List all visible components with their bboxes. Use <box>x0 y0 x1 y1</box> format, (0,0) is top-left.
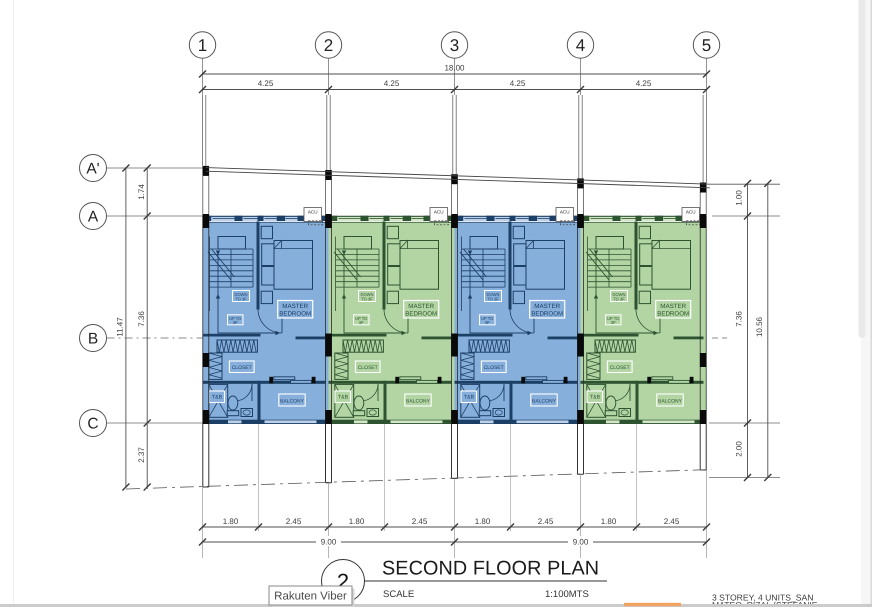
svg-text:B: B <box>88 331 98 348</box>
svg-text:MASTER: MASTER <box>534 303 560 310</box>
svg-text:3F: 3F <box>233 320 238 325</box>
svg-text:2.37: 2.37 <box>137 447 146 463</box>
svg-text:1.00: 1.00 <box>735 190 744 206</box>
svg-text:2.45: 2.45 <box>538 517 554 526</box>
svg-text:C: C <box>87 416 98 433</box>
svg-text:1.80: 1.80 <box>223 517 239 526</box>
svg-text:BALCONY: BALCONY <box>280 398 305 404</box>
svg-text:1.80: 1.80 <box>475 517 491 526</box>
svg-text:CLOSET: CLOSET <box>610 365 630 371</box>
svg-text:A': A' <box>86 161 99 178</box>
svg-text:4.25: 4.25 <box>258 79 274 88</box>
svg-text:SCALE: SCALE <box>383 589 414 600</box>
svg-text:2.45: 2.45 <box>412 517 428 526</box>
svg-text:1:100MTS: 1:100MTS <box>545 589 589 600</box>
svg-text:5: 5 <box>702 36 711 55</box>
svg-text:18.00: 18.00 <box>444 64 465 73</box>
svg-text:MASTER: MASTER <box>282 303 308 310</box>
svg-text:TO 3F: TO 3F <box>613 297 625 302</box>
svg-text:1: 1 <box>198 36 207 55</box>
svg-text:MASTER: MASTER <box>660 303 686 310</box>
svg-text:BEDROOM: BEDROOM <box>657 311 689 318</box>
svg-text:T&B: T&B <box>338 395 349 401</box>
svg-text:9.00: 9.00 <box>321 538 337 547</box>
svg-text:BALCONY: BALCONY <box>532 398 557 404</box>
svg-text:CLOSET: CLOSET <box>358 365 378 371</box>
svg-text:2: 2 <box>324 36 333 55</box>
svg-text:9.00: 9.00 <box>573 538 589 547</box>
svg-text:ACU: ACU <box>686 210 696 215</box>
svg-text:10.56: 10.56 <box>755 316 764 337</box>
svg-text:CLOSET: CLOSET <box>232 365 252 371</box>
svg-text:7.36: 7.36 <box>137 311 146 327</box>
svg-text:ACU: ACU <box>434 210 444 215</box>
svg-text:ACU: ACU <box>560 210 570 215</box>
svg-text:BALCONY: BALCONY <box>406 398 431 404</box>
svg-text:3F: 3F <box>611 320 616 325</box>
svg-text:2.45: 2.45 <box>664 517 680 526</box>
svg-text:4.25: 4.25 <box>384 79 400 88</box>
svg-text:4.25: 4.25 <box>636 79 652 88</box>
svg-text:T&B: T&B <box>590 395 601 401</box>
svg-text:11.47: 11.47 <box>116 317 125 337</box>
svg-text:BEDROOM: BEDROOM <box>405 311 437 318</box>
svg-text:A: A <box>88 209 99 226</box>
svg-text:2.45: 2.45 <box>286 517 302 526</box>
svg-text:T&B: T&B <box>212 395 223 401</box>
svg-text:1.74: 1.74 <box>137 184 146 200</box>
svg-text:MASTER: MASTER <box>408 303 434 310</box>
svg-text:TO 3F: TO 3F <box>361 297 373 302</box>
svg-text:3F: 3F <box>485 320 490 325</box>
svg-text:CLOSET: CLOSET <box>484 365 504 371</box>
svg-text:Rakuten Viber: Rakuten Viber <box>274 591 347 603</box>
svg-text:SECOND FLOOR PLAN: SECOND FLOOR PLAN <box>382 558 599 580</box>
svg-text:1.80: 1.80 <box>601 517 617 526</box>
svg-text:BALCONY: BALCONY <box>658 398 683 404</box>
svg-text:BEDROOM: BEDROOM <box>531 311 563 318</box>
svg-text:4: 4 <box>576 36 585 55</box>
svg-text:ACU: ACU <box>308 210 318 215</box>
svg-text:TO 3F: TO 3F <box>487 297 499 302</box>
svg-text:3F: 3F <box>359 320 364 325</box>
svg-text:4.25: 4.25 <box>510 79 526 88</box>
svg-text:3: 3 <box>450 36 459 55</box>
svg-text:7.36: 7.36 <box>735 311 744 327</box>
svg-text:TO 3F: TO 3F <box>235 297 247 302</box>
svg-text:2.00: 2.00 <box>735 441 744 457</box>
svg-text:BEDROOM: BEDROOM <box>279 311 311 318</box>
svg-text:T&B: T&B <box>464 395 475 401</box>
svg-text:1.80: 1.80 <box>349 517 365 526</box>
